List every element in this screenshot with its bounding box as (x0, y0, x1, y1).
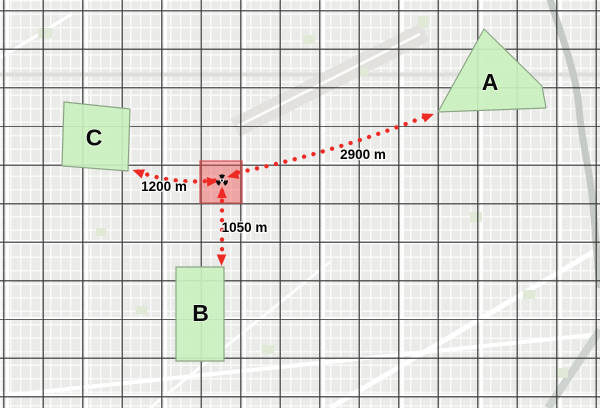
zone-c-label: C (86, 125, 103, 151)
arrowhead-at-a (422, 109, 436, 122)
distance-label-c: 1200 m (141, 179, 187, 194)
arrowhead-at-b (217, 255, 227, 267)
map-canvas[interactable]: A B C 2900 m 1050 m 1200 m (0, 0, 600, 408)
arrowhead-at-c (131, 165, 145, 178)
measure-line-to-a (238, 117, 424, 173)
distance-label-a: 2900 m (340, 147, 386, 162)
analysis-overlay: A B C 2900 m 1050 m 1200 m (0, 0, 600, 408)
zone-a-label: A (482, 69, 499, 95)
zone-b-label: B (192, 300, 209, 326)
distance-label-b: 1050 m (222, 220, 268, 235)
